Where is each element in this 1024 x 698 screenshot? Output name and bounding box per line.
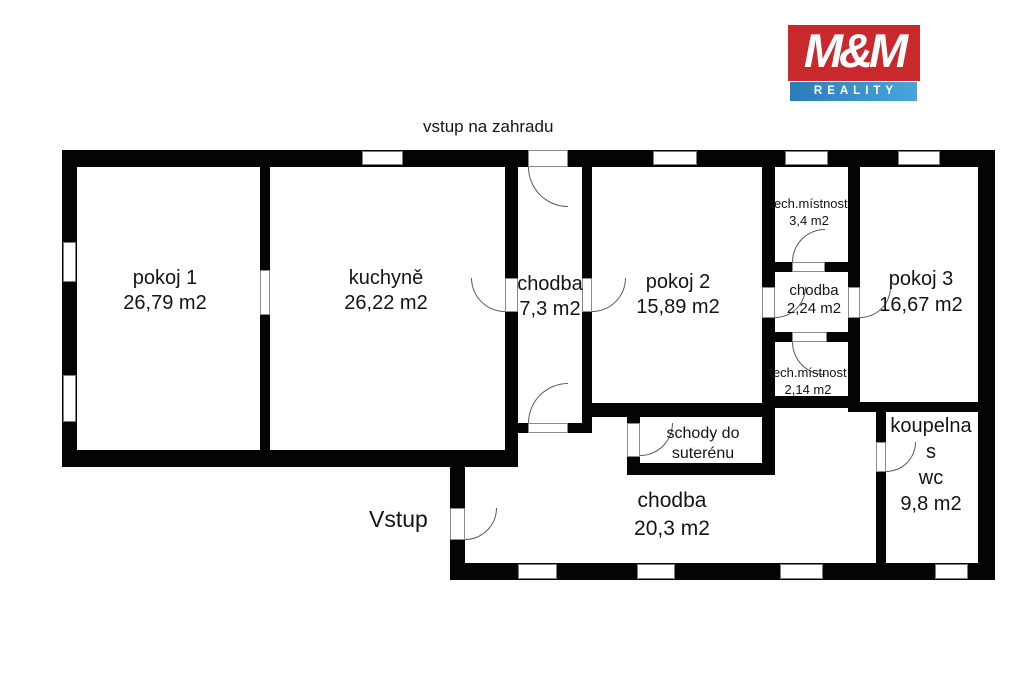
room-label-koupelna-s-wc: koupelna s wc 9,8 m2 <box>890 413 971 517</box>
room-name: pokoj 1 <box>123 266 206 291</box>
door-arc-vstup <box>465 508 497 540</box>
window-chodba-bottom-2 <box>637 564 675 579</box>
room-label-pokoj-1: pokoj 1 26,79 m2 <box>123 266 206 316</box>
window-pokoj3-top <box>898 151 940 165</box>
room-name: pokoj 3 <box>879 266 962 292</box>
door-gap-garden-entrance <box>528 150 568 167</box>
window-chodba-bottom-1 <box>518 564 557 579</box>
door-gap-chodba2-left <box>762 287 775 318</box>
door-arc-garden-entrance <box>528 167 568 207</box>
room-name: kuchyně <box>344 266 427 291</box>
room-name: koupelna <box>890 413 971 439</box>
room-area: 2,14 m2 <box>769 381 846 398</box>
window-tech1-top <box>785 151 828 165</box>
window-pokoj2-top <box>653 151 697 165</box>
room-area: 15,89 m2 <box>636 295 719 320</box>
door-gap-chodba-dolni <box>528 423 568 433</box>
room-name: schody do <box>667 424 740 444</box>
door-arc-pokoj2 <box>592 278 626 312</box>
room-area: 7,3 m2 <box>517 297 583 322</box>
room-label-chodba-stredni: chodba 2,24 m2 <box>787 282 841 318</box>
room-name: chodba <box>634 487 710 515</box>
mm-reality-logo: M&M REALITY <box>788 25 920 102</box>
room-area: 26,79 m2 <box>123 291 206 316</box>
floor-plan: M&M REALITY <box>0 0 1024 698</box>
wall-pokoj2-bottom <box>582 403 762 417</box>
door-gap-tech2 <box>792 332 827 342</box>
room-area: 20,3 m2 <box>634 515 710 543</box>
room-name: pokoj 2 <box>636 270 719 295</box>
door-gap-vstup <box>450 508 465 540</box>
door-arc-tech1 <box>792 229 825 262</box>
door-gap-schody <box>627 423 640 457</box>
room-name-2: s <box>890 439 971 465</box>
entrance-label: Vstup <box>369 506 428 533</box>
door-arc-chodba-dolni <box>528 383 568 423</box>
room-label-tech-mistnost-dolni: tech.místnost 2,14 m2 <box>769 364 846 398</box>
window-kuchyne-top <box>362 151 403 165</box>
room-label-tech-mistnost-horni: tech.místnost 3,4 m2 <box>770 195 847 229</box>
room-area: 2,24 m2 <box>787 300 841 318</box>
room-area: 26,22 m2 <box>344 291 427 316</box>
garden-entrance-label: vstup na zahradu <box>423 117 553 137</box>
room-label-chodba-horni: chodba 7,3 m2 <box>517 272 583 322</box>
window-chodba-bottom-3 <box>780 564 823 579</box>
wall-koupelna-left <box>876 402 886 570</box>
room-name: tech.místnost <box>769 364 846 381</box>
room-name: chodba <box>787 282 841 300</box>
window-koupelna-bottom <box>935 564 968 579</box>
room-label-kuchyne: kuchyně 26,22 m2 <box>344 266 427 316</box>
door-gap-kuchyne <box>505 278 518 312</box>
door-arc-kuchyne <box>471 278 505 312</box>
room-label-pokoj-2: pokoj 2 15,89 m2 <box>636 270 719 320</box>
door-gap-pokoj2 <box>582 278 592 312</box>
door-gap-tech1 <box>792 262 825 272</box>
door-gap-chodba2-right <box>848 287 860 318</box>
logo-brand-text: M&M <box>788 25 920 81</box>
logo-tagline-text: REALITY <box>790 82 917 101</box>
room-name: chodba <box>517 272 583 297</box>
room-label-pokoj-3: pokoj 3 16,67 m2 <box>879 266 962 318</box>
room-name-3: wc <box>890 465 971 491</box>
room-area: suterénu <box>667 444 740 464</box>
door-gap-pokoj1-kuchyne <box>260 270 270 315</box>
window-pokoj1-left-1 <box>63 242 76 282</box>
room-label-chodba-vstupni: chodba 20,3 m2 <box>634 487 710 543</box>
wall-schody-bottom <box>627 463 762 475</box>
room-label-schody-do-suterenu: schody do suterénu <box>667 424 740 464</box>
window-pokoj1-left-2 <box>63 375 76 422</box>
room-area: 9,8 m2 <box>890 491 971 517</box>
room-area: 3,4 m2 <box>770 212 847 229</box>
room-name: tech.místnost <box>770 195 847 212</box>
room-area: 16,67 m2 <box>879 292 962 318</box>
door-gap-koupelna <box>876 442 886 472</box>
wall-outer-right <box>978 150 995 580</box>
